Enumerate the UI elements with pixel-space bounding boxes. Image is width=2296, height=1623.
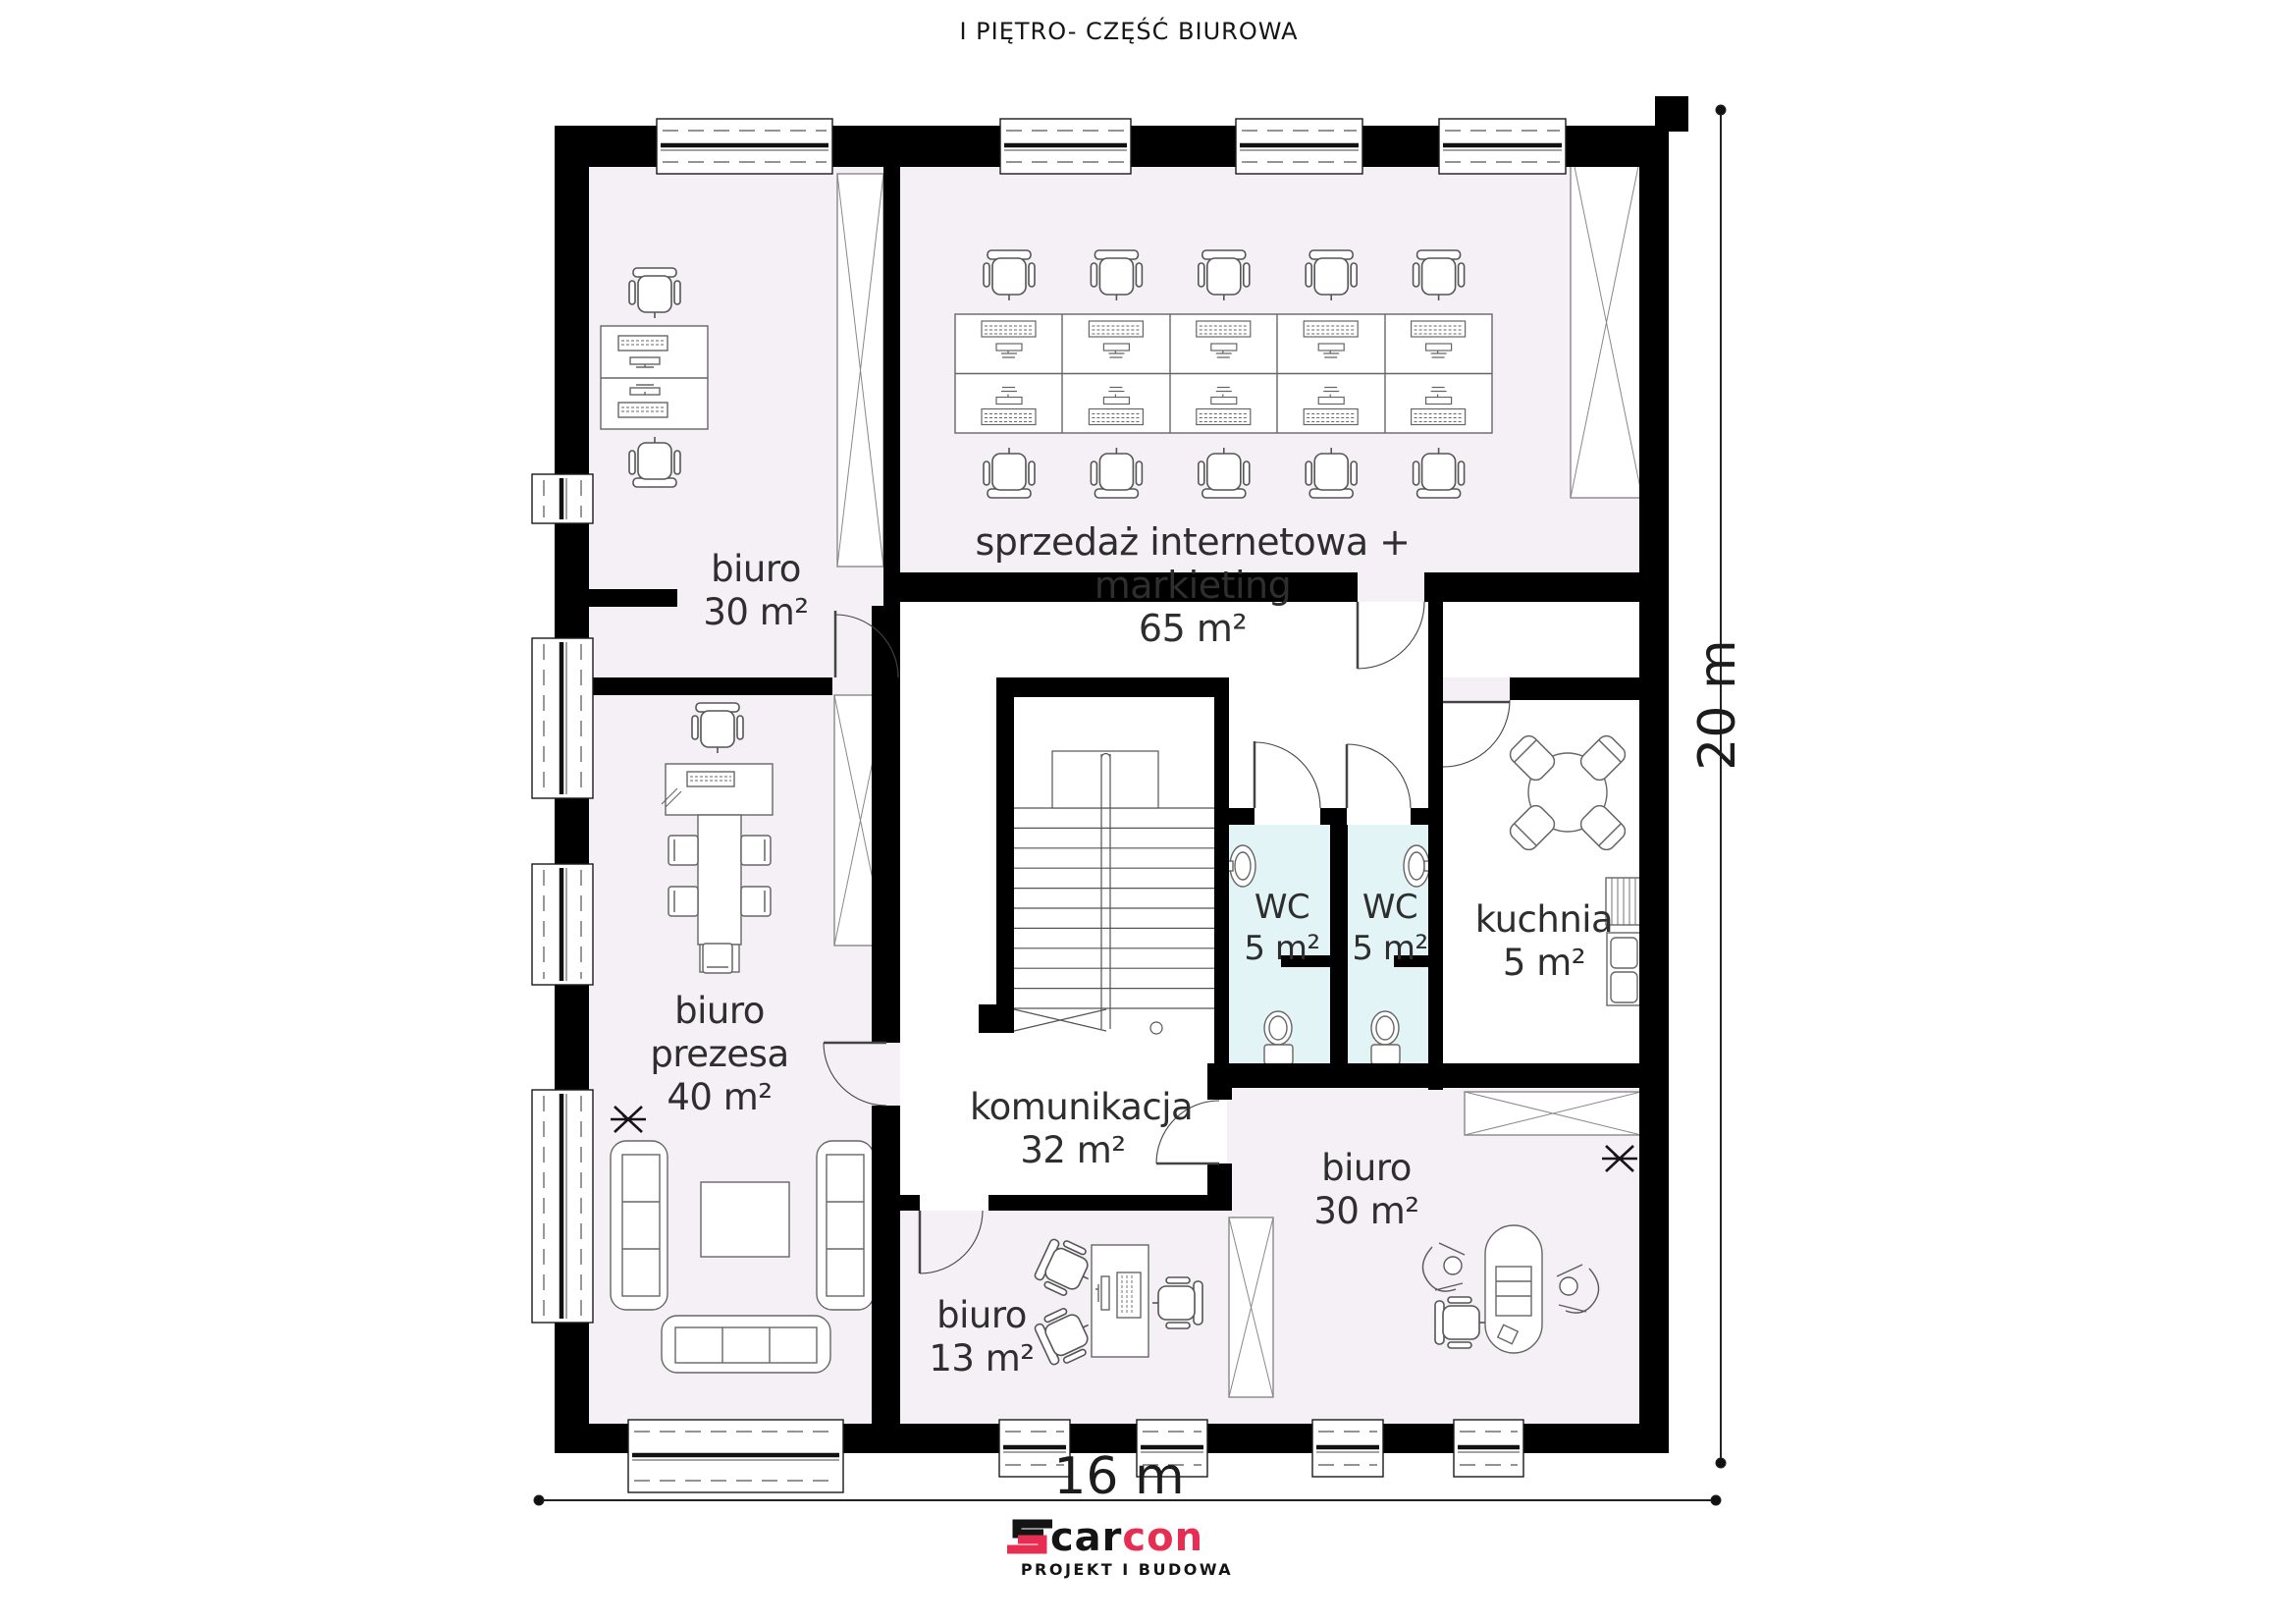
window-icon [1454,1420,1523,1477]
window-icon [532,474,593,523]
sink-icon [1404,845,1430,887]
wardrobe-icon [1465,1092,1641,1135]
chair-icon [741,887,771,916]
chair-icon [668,836,698,865]
window-icon [532,1090,593,1323]
chair-icon [668,887,698,916]
logo-tagline: PROJEKT I BUDOWA [1004,1560,1250,1579]
window-icon [532,864,593,985]
wardrobe-icon [1571,147,1642,498]
toilet-icon [1371,1011,1400,1064]
wardrobe-icon [837,174,883,567]
company-logo: carcon PROJEKT I BUDOWA [1004,1518,1250,1579]
toilet-icon [1264,1011,1293,1064]
open-office-desks [955,314,1492,433]
desk-icon [662,764,773,815]
wardrobe-icon [1229,1217,1273,1397]
room-label-biuro-13: biuro 13 m² [893,1294,1070,1380]
window-icon [532,638,593,798]
room-label-komunikacja: komunikacja 32 m² [970,1086,1176,1172]
chair-icon [741,836,771,865]
desk-icon [1485,1225,1542,1353]
floor-plan-drawing [0,0,2296,1623]
coffee-table-icon [701,1182,789,1257]
room-label-prezesa: biuro prezesa 40 m² [626,990,813,1119]
window-icon [1439,119,1566,174]
logo-brand-black: car [1050,1515,1122,1560]
room-label-biuro-tl: biuro 30 m² [658,548,854,634]
window-icon [1236,119,1362,174]
sofa-icon [611,1141,667,1310]
sofa-icon [662,1316,830,1373]
stair-landing [1052,751,1158,808]
chair-icon [703,944,732,973]
logo-mark-icon [1004,1518,1055,1555]
dimension-width-label: 16 m [1011,1447,1227,1506]
window-icon [1312,1420,1383,1477]
window-icon [1000,119,1131,174]
dimension-height-label: 20 m [1688,597,1747,813]
sofa-icon [817,1141,874,1310]
desk-icon [1092,1245,1148,1357]
logo-brand-red: con [1122,1515,1203,1560]
room-label-sprzedaz: sprzedaż internetowa + markieting 65 m² [888,520,1497,650]
floor-plan-page: I PIĘTRO- CZĘŚĆ BIUROWA biuro 30 m² sprz… [0,0,2296,1623]
window-icon [628,1420,843,1492]
desk-icon [601,326,708,429]
wall-corner-stub [1655,96,1688,132]
window-icon [657,119,832,174]
room-label-kuchnia: kuchnia 5 m² [1441,898,1647,985]
room-label-wc1: WC 5 m² [1233,887,1331,969]
room-label-biuro-br: biuro 30 m² [1268,1147,1465,1233]
room-label-wc2: WC 5 m² [1341,887,1439,969]
page-title: I PIĘTRO- CZĘŚĆ BIUROWA [883,18,1374,45]
